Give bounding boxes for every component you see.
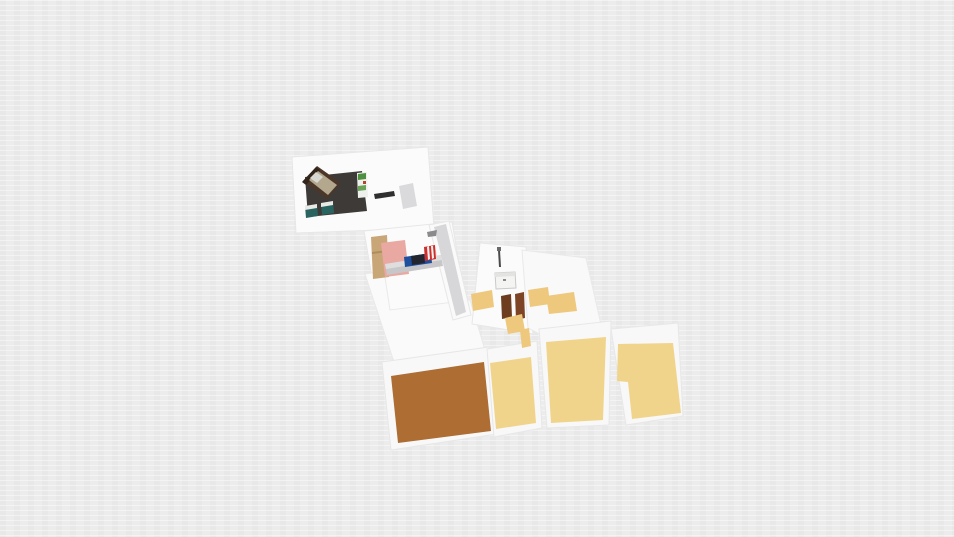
floor-tan-room-b <box>546 337 606 423</box>
floorplan-svg <box>0 0 954 537</box>
3d-viewport[interactable] <box>0 0 954 537</box>
door-panel-left <box>501 294 512 319</box>
floor-lamp-head <box>497 247 501 251</box>
red-chair <box>424 245 436 261</box>
floor-brown-room <box>391 362 491 443</box>
shelf-plant-mid <box>358 185 366 191</box>
sink-handle <box>503 279 506 281</box>
floor-tan-room-a <box>490 357 536 429</box>
shelf-red-item <box>363 181 366 184</box>
shelf-plant-top <box>358 173 366 180</box>
